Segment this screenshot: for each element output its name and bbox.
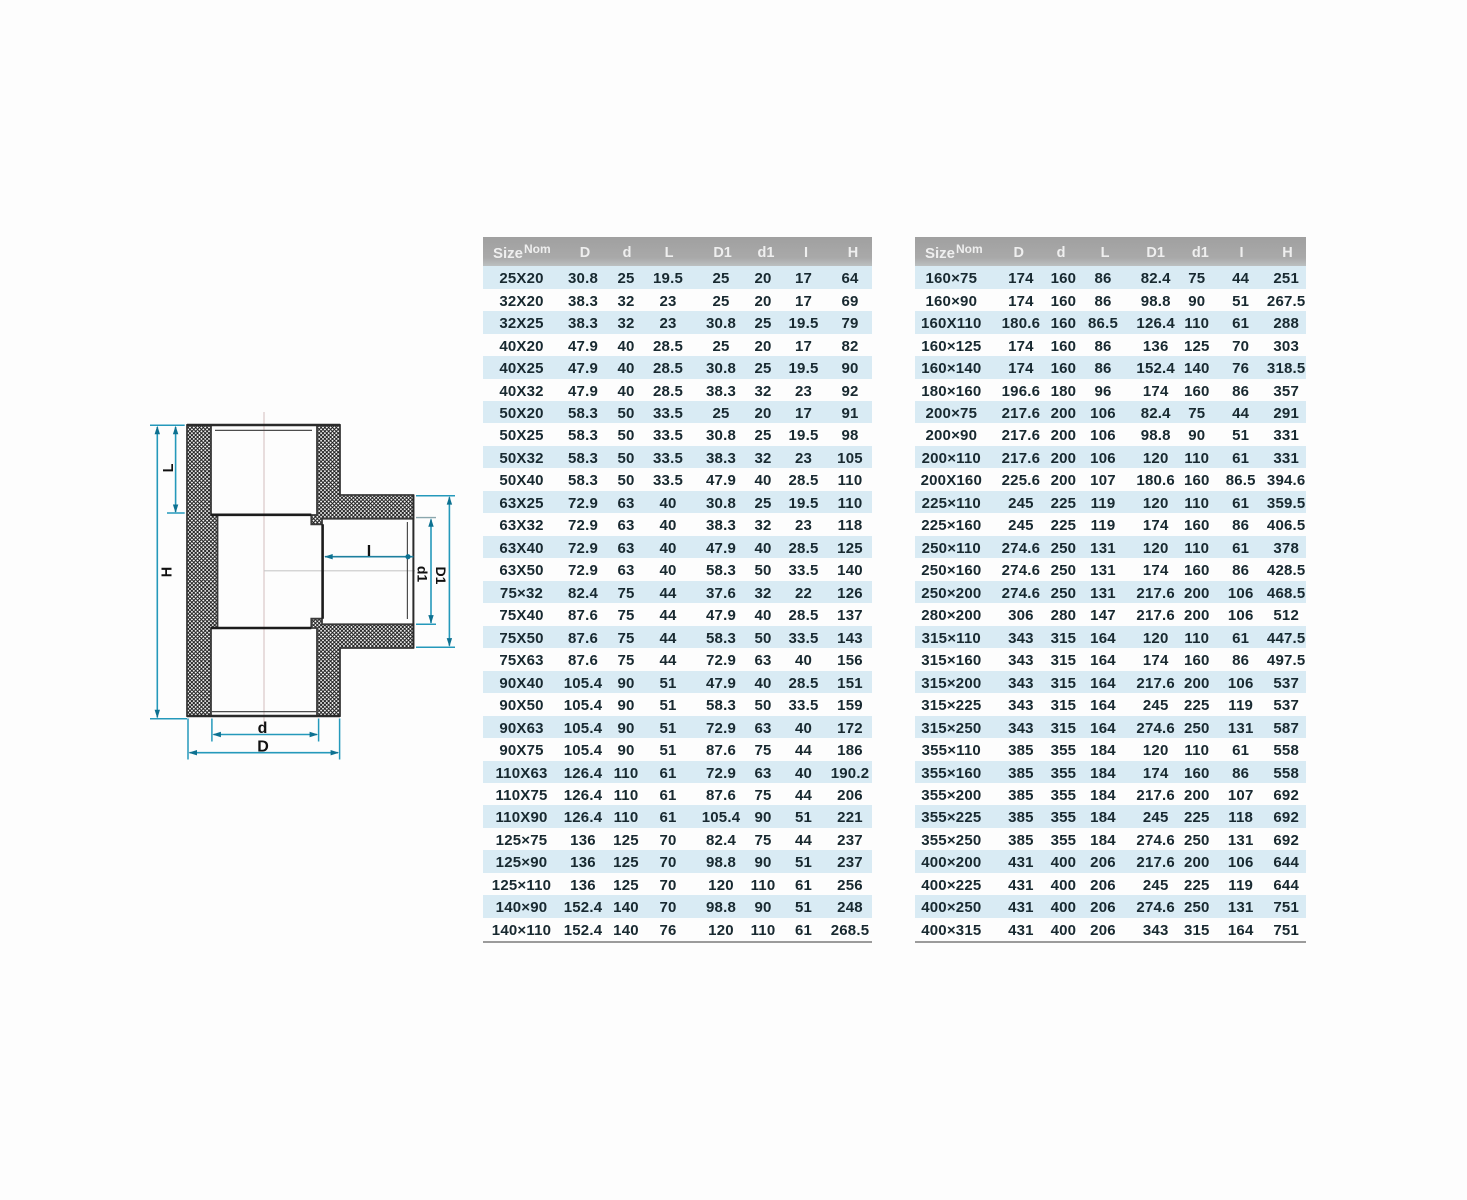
svg-text:d1: d1 (415, 566, 431, 583)
svg-text:D1: D1 (433, 567, 449, 585)
svg-text:H: H (160, 567, 176, 577)
svg-text:L: L (161, 463, 177, 472)
svg-text:D: D (257, 739, 269, 756)
svg-text:d: d (258, 720, 268, 737)
svg-text:I: I (367, 543, 371, 560)
